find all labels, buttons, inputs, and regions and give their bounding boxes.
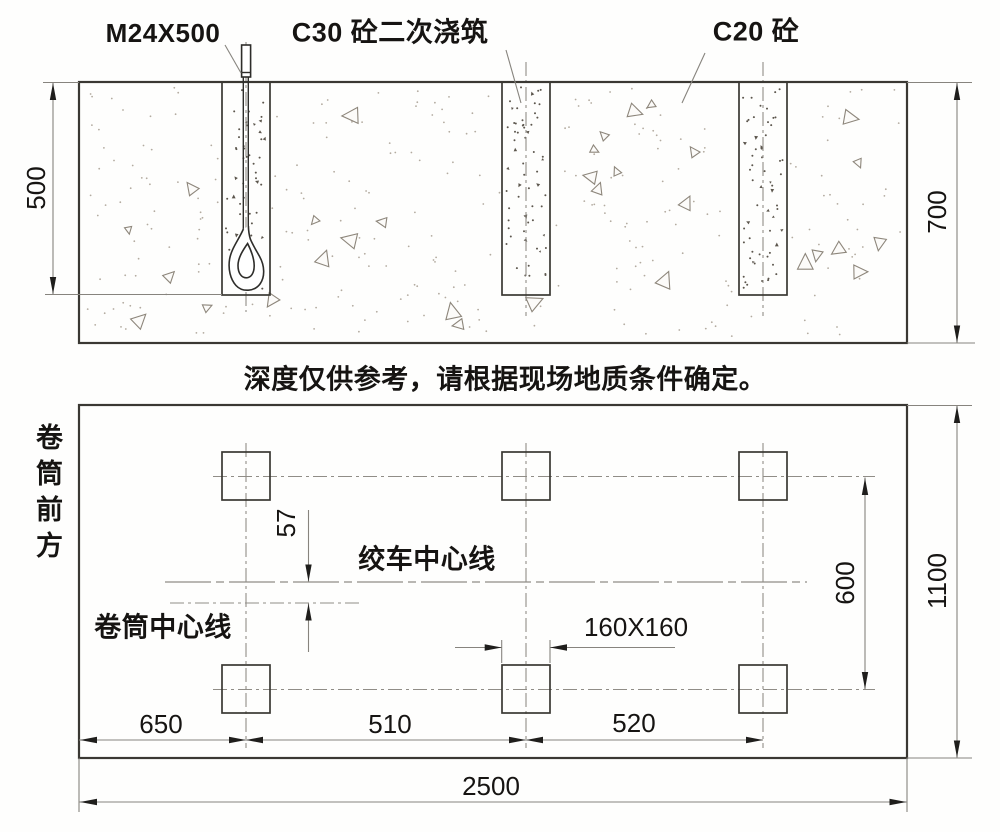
dimension-arrow xyxy=(954,83,960,100)
dim-650-text: 650 xyxy=(139,711,182,737)
dimension-arrow xyxy=(50,83,56,100)
dim-500-text: 500 xyxy=(23,166,49,209)
dimension-arrow xyxy=(229,737,246,743)
c20-concrete-label: C20 砼 xyxy=(713,19,800,46)
dimension-arrow xyxy=(954,741,960,758)
dimension-arrow xyxy=(526,737,543,743)
leader-line-m24 xyxy=(225,45,241,73)
dimension-arrow xyxy=(50,277,56,294)
dimension-arrow xyxy=(550,644,567,650)
dimension-arrow xyxy=(80,737,97,743)
leader-line-c20 xyxy=(682,53,705,103)
bolt-spec-label: M24X500 xyxy=(106,20,221,46)
leader-line-c30 xyxy=(506,50,521,103)
dim-160x160-text: 160X160 xyxy=(584,614,688,640)
dim-700-text: 700 xyxy=(924,190,950,233)
drum-centerline-label: 卷筒中心线 xyxy=(94,615,232,642)
c30-grout-label: C30 砼二次浇筑 xyxy=(292,20,489,47)
drum-front-label: 卷筒前方 xyxy=(33,423,60,567)
pocket-grout-stipple xyxy=(225,86,784,289)
dimension-arrow xyxy=(509,737,526,743)
dim-2500-text: 2500 xyxy=(462,773,520,799)
section-view xyxy=(43,42,975,343)
foundation-section-outline xyxy=(79,82,907,343)
dimension-arrows xyxy=(50,83,960,805)
drawing-linework xyxy=(0,0,1000,832)
dimension-arrow xyxy=(862,478,868,495)
dim-520-text: 520 xyxy=(612,710,655,736)
dim-600-text: 600 xyxy=(832,561,858,604)
dimension-arrow xyxy=(862,672,868,689)
drawing-canvas: M24X500 C30 砼二次浇筑 C20 砼 500 700 深度仅供参考，请… xyxy=(0,0,1000,832)
dim-1100-text: 1100 xyxy=(924,553,950,609)
dim-160x160-group xyxy=(455,640,675,663)
dim-510-text: 510 xyxy=(368,711,411,737)
dimension-arrow xyxy=(954,326,960,343)
dimension-arrow xyxy=(80,799,97,805)
dimension-arrow xyxy=(305,604,311,621)
dimension-arrow xyxy=(246,737,263,743)
plan-view xyxy=(79,405,972,812)
depth-note: 深度仅供参考，请根据现场地质条件确定。 xyxy=(244,367,767,394)
dimension-arrow xyxy=(954,406,960,423)
concrete-stipple xyxy=(87,87,901,337)
dimension-arrow xyxy=(746,737,763,743)
dim-57-text: 57 xyxy=(273,509,299,538)
dimension-arrow xyxy=(305,565,311,582)
dimension-arrow xyxy=(890,799,907,805)
winch-centerline-label: 绞车中心线 xyxy=(358,547,496,574)
dimension-arrow xyxy=(485,644,502,650)
